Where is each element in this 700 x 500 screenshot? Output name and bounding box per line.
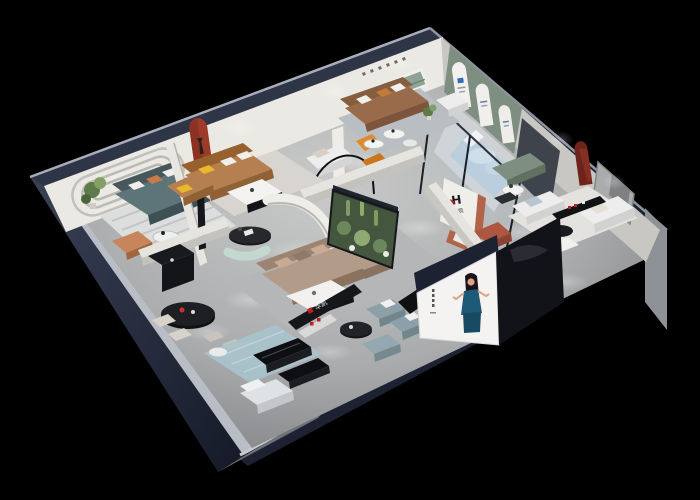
red-accent-book — [574, 204, 577, 207]
caption-glyph — [432, 299, 435, 302]
woman-dress-skirt — [463, 312, 481, 333]
red-accent-book — [568, 206, 571, 209]
red-display-item — [317, 318, 321, 322]
wall-spotlight — [546, 131, 574, 149]
cabinet-decor — [170, 258, 174, 262]
blue-logo-mark — [457, 78, 464, 84]
woman-face — [467, 278, 474, 285]
caption-line — [430, 312, 436, 314]
table-decor — [391, 129, 394, 132]
plant-foliage — [94, 177, 106, 189]
glass-vase — [312, 291, 316, 295]
plant-pot — [427, 116, 431, 120]
showroom-render: H 华凯 — [0, 0, 700, 500]
table-decor — [238, 227, 242, 231]
table-decor — [250, 188, 254, 192]
caption-glyph — [432, 304, 435, 307]
wall-spotlight — [384, 53, 412, 71]
round-side-table — [403, 140, 417, 147]
red-table-decor — [180, 308, 185, 313]
table-plant — [509, 184, 513, 188]
red-display-item — [310, 322, 314, 326]
table-decor — [371, 139, 374, 142]
table-decor — [349, 325, 353, 329]
white-accent-item — [582, 201, 585, 204]
caption-glyph — [432, 289, 435, 292]
white-table-decor — [191, 310, 195, 314]
black-round-table-top — [340, 322, 372, 337]
plant-pot — [90, 203, 96, 209]
table-decor — [161, 231, 165, 235]
wall-spotlight — [602, 174, 626, 190]
caption-glyph — [432, 294, 435, 297]
round-white-table — [502, 185, 524, 195]
white-tray-table — [209, 348, 227, 357]
wall-spotlight — [223, 117, 257, 139]
black-oval-table-top — [229, 227, 271, 244]
plant-foliage — [430, 105, 437, 112]
plant-foliage — [81, 194, 91, 204]
isometric-floorplan-svg: H 华凯 — [0, 0, 700, 500]
